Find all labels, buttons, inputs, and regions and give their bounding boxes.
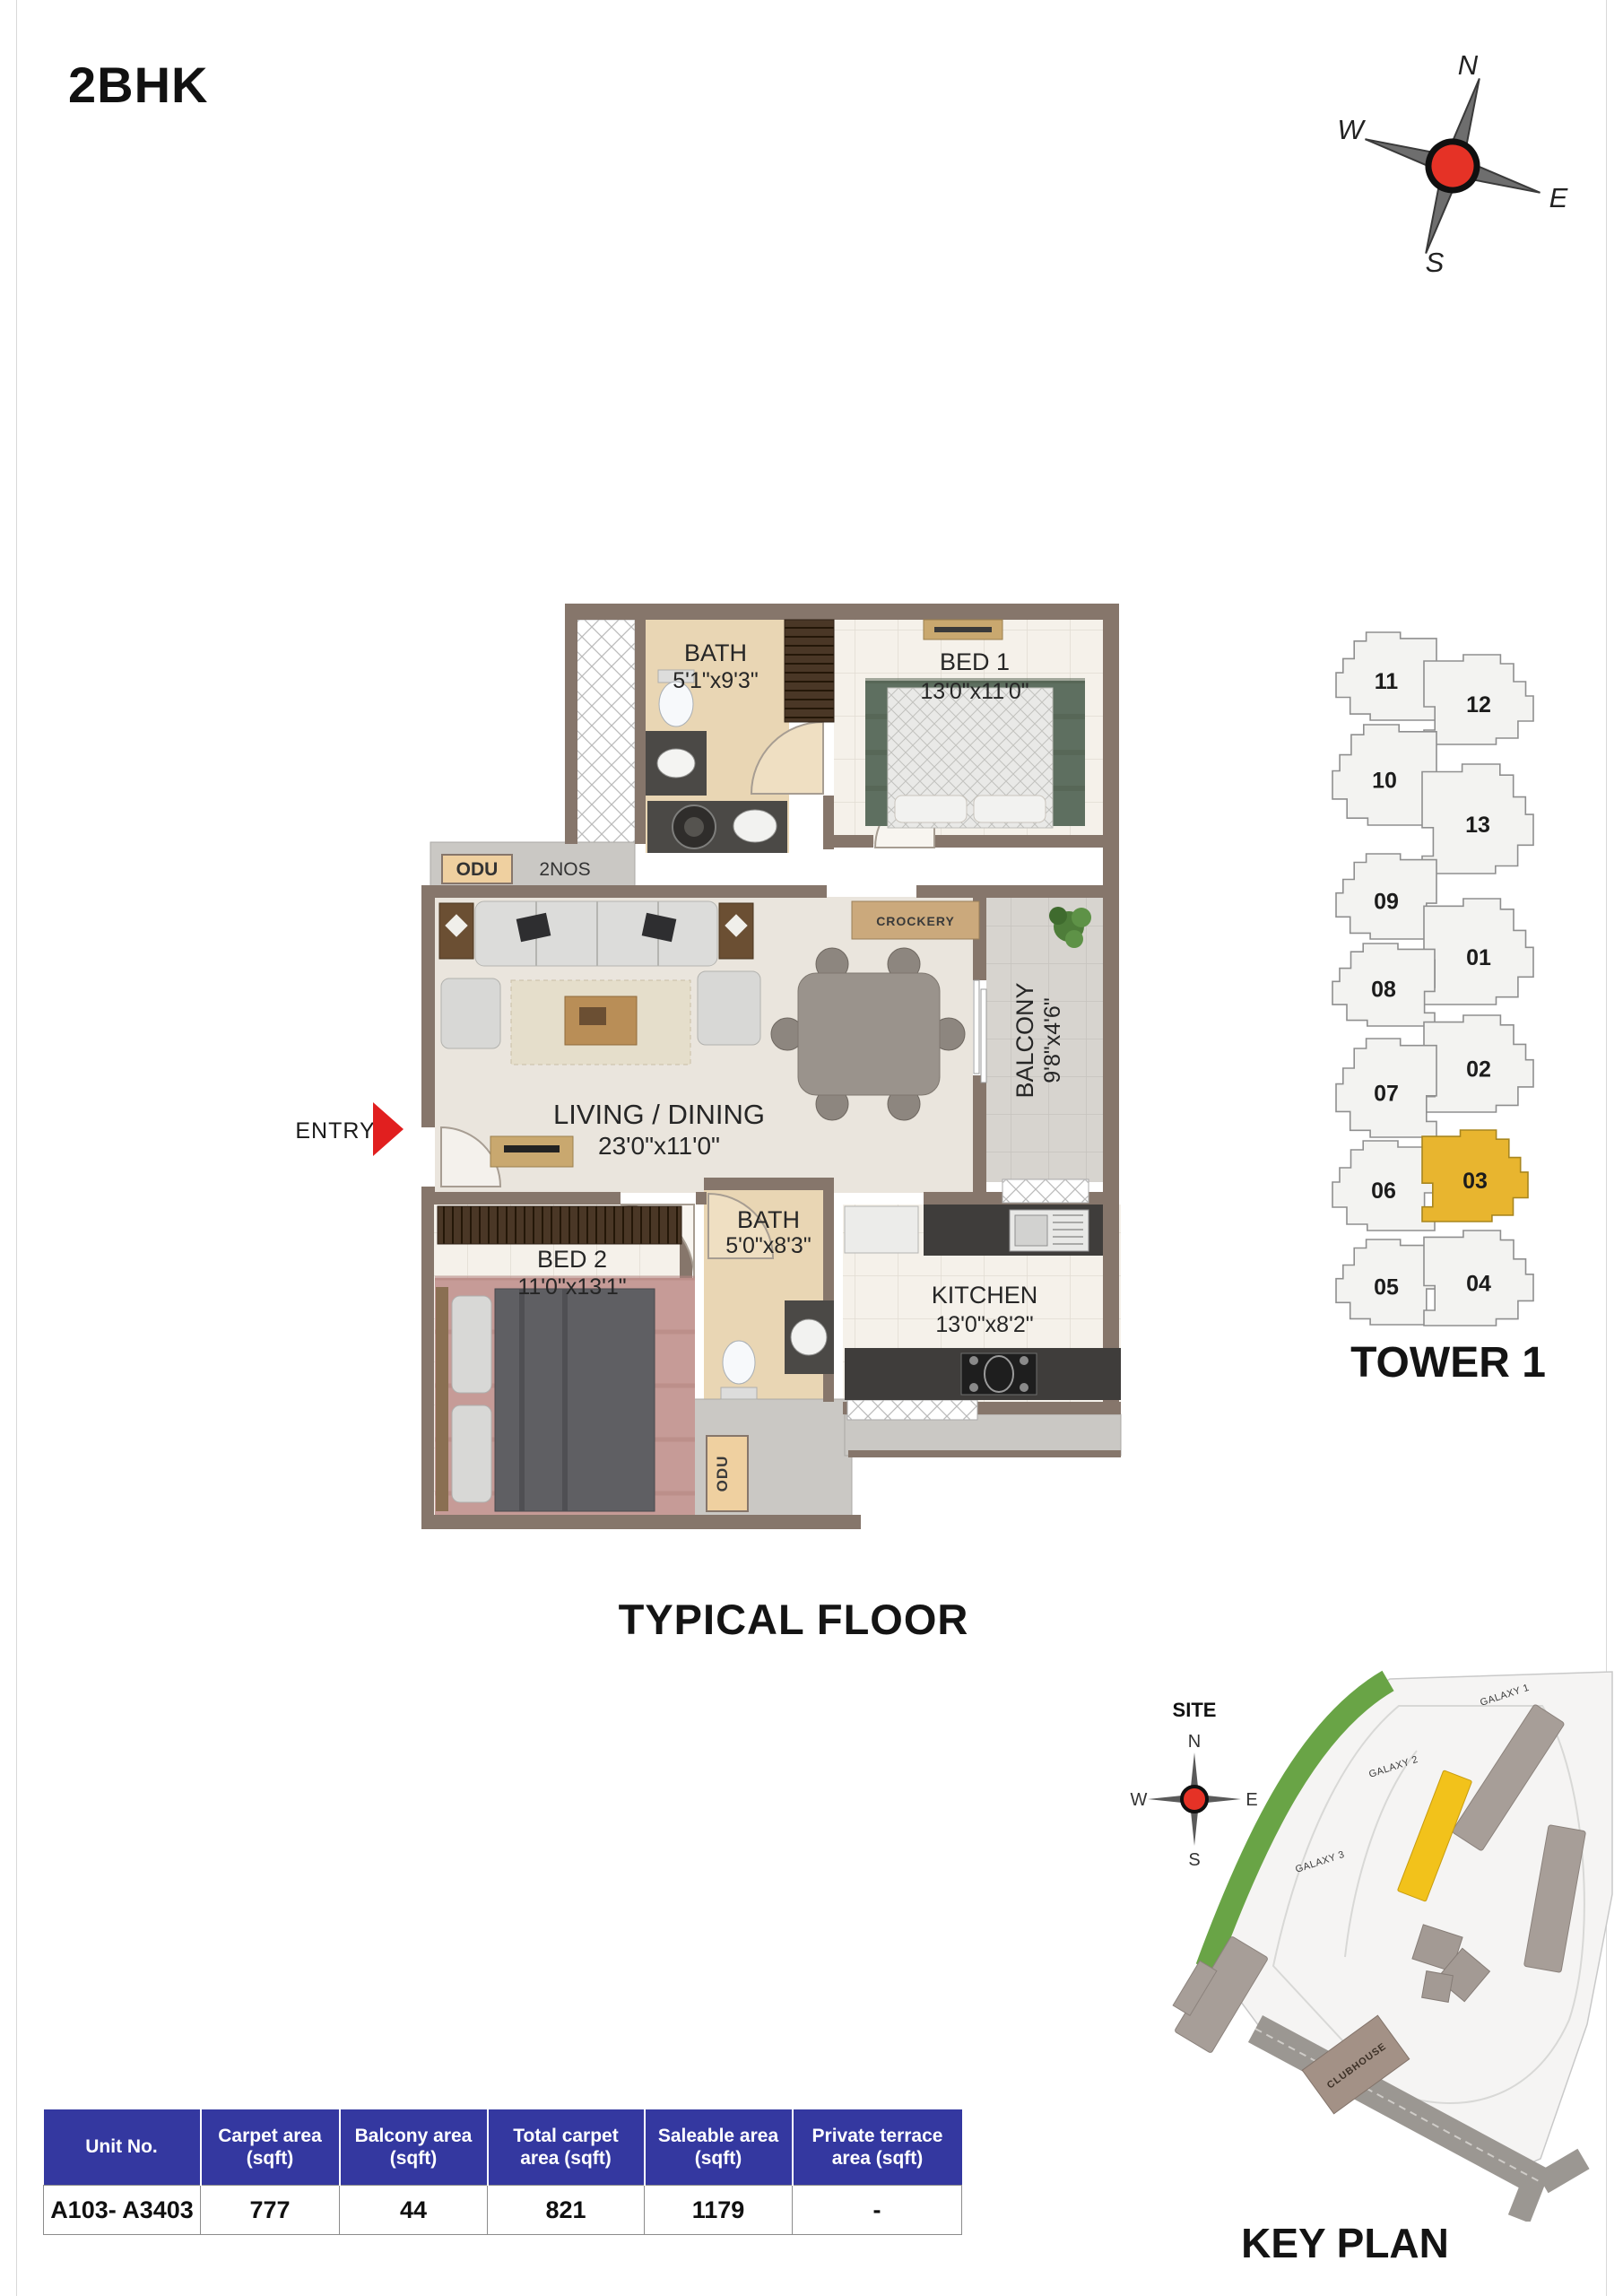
bed2-wardrobe (438, 1206, 681, 1244)
cell-saleable-area: 1179 (645, 2186, 793, 2235)
cell-balcony-area: 44 (340, 2186, 488, 2235)
tower-unit-number-09: 09 (1374, 889, 1399, 914)
compass-west-label: W (1337, 114, 1366, 145)
area-table-header-row: Unit No. Carpet area (sqft) Balcony area… (44, 2109, 962, 2186)
balcony-dim: 9'8"x4'6" (1040, 997, 1065, 1083)
shaft-hatch (576, 620, 635, 844)
tower-unit-number-12: 12 (1466, 692, 1491, 717)
header-carpet-area: Carpet area (sqft) (201, 2109, 340, 2186)
tower-unit-number-08: 08 (1371, 978, 1396, 1003)
tower-unit-number-03: 03 (1462, 1169, 1488, 1194)
compass-rose: N S E W (1327, 40, 1578, 291)
bath1-name: BATH (684, 639, 747, 666)
tower-unit-number-02: 02 (1466, 1057, 1491, 1082)
cell-carpet-area: 777 (201, 2186, 340, 2235)
bed2-furniture (435, 1278, 695, 1515)
tower-unit-number-06: 06 (1371, 1178, 1396, 1204)
compass-arms (1339, 52, 1567, 281)
rear-walkway (845, 1414, 1121, 1456)
page-title: 2BHK (68, 56, 208, 114)
tower-title: TOWER 1 (1305, 1338, 1592, 1387)
balcony-slider (974, 980, 986, 1083)
tower-unit-number-07: 07 (1374, 1082, 1399, 1107)
site-compass-west: W (1131, 1790, 1148, 1810)
area-table-data-row: A103- A3403 777 44 821 1179 - (44, 2186, 962, 2235)
kitchen-dim: 13'0"x8'2" (935, 1312, 1033, 1337)
bed1-dim: 13'0"x11'0" (920, 679, 1028, 704)
bath2-name: BATH (737, 1206, 800, 1233)
crockery-label: CROCKERY (876, 914, 955, 928)
utility-odu-label: ODU (714, 1456, 731, 1492)
page-left-border (16, 0, 17, 2296)
site-key-plan: ROAD CLUBHOUSE GALAXY 1 GALAXY 2 GALAXY … (1121, 1670, 1623, 2226)
bed2-dim: 11'0"x13'1" (517, 1274, 626, 1300)
tower-key-plan: 11121013090108020706030504 (1309, 619, 1578, 1341)
site-compass-north: N (1188, 1732, 1201, 1752)
bath1-dim: 5'1"x9'3" (673, 668, 758, 693)
bed2-name: BED 2 (537, 1246, 607, 1273)
tower-unit-number-01: 01 (1466, 945, 1491, 970)
header-balcony-area: Balcony area (sqft) (340, 2109, 488, 2186)
compass-north-label: N (1458, 49, 1479, 81)
balcony-name: BALCONY (1011, 982, 1038, 1098)
site-label: SITE (1173, 1699, 1217, 1721)
key-plan-title: KEY PLAN (1184, 2219, 1506, 2267)
header-private-terrace: Private terrace area (sqft) (793, 2109, 962, 2186)
header-saleable-area: Saleable area (sqft) (645, 2109, 793, 2186)
living-dim: 23'0"x11'0" (598, 1132, 720, 1160)
compass-center-dot (1422, 135, 1482, 196)
tower-unit-number-13: 13 (1465, 813, 1490, 838)
area-table: Unit No. Carpet area (sqft) Balcony area… (43, 2109, 962, 2235)
site-compass-south: S (1188, 1850, 1200, 1870)
tower-unit-number-05: 05 (1374, 1274, 1399, 1300)
header-total-carpet: Total carpet area (sqft) (488, 2109, 645, 2186)
site-compass: SITE N S W E (1131, 1699, 1258, 1870)
odu-label: ODU (456, 859, 499, 880)
balcony-window-hatch (1002, 1179, 1089, 1203)
bed1-wardrobe (785, 620, 834, 722)
cell-unit-no: A103- A3403 (44, 2186, 201, 2235)
compass-east-label: E (1549, 182, 1568, 213)
tower-unit-number-11: 11 (1375, 669, 1399, 694)
tower-unit-number-10: 10 (1372, 769, 1397, 794)
kitchen-window-hatch (847, 1400, 977, 1420)
kitchen-name: KITCHEN (932, 1282, 1038, 1309)
bed1-name: BED 1 (940, 648, 1010, 675)
typical-floor-label: TYPICAL FLOOR (525, 1595, 1063, 1644)
header-unit-no: Unit No. (44, 2109, 201, 2186)
entry-label: ENTRY (296, 1118, 376, 1144)
bath2-dim: 5'0"x8'3" (725, 1233, 811, 1258)
cell-private-terrace: - (793, 2186, 962, 2235)
tower-unit-number-04: 04 (1466, 1271, 1491, 1296)
floor-plan: ODU 2NOS CROCKERY (296, 587, 1130, 1534)
living-name: LIVING / DINING (553, 1099, 765, 1130)
compass-south-label: S (1426, 247, 1445, 278)
site-compass-east: E (1245, 1790, 1257, 1810)
entry-arrow-icon (373, 1102, 404, 1156)
cell-total-carpet: 821 (488, 2186, 645, 2235)
odu-qty-label: 2NOS (539, 859, 590, 880)
